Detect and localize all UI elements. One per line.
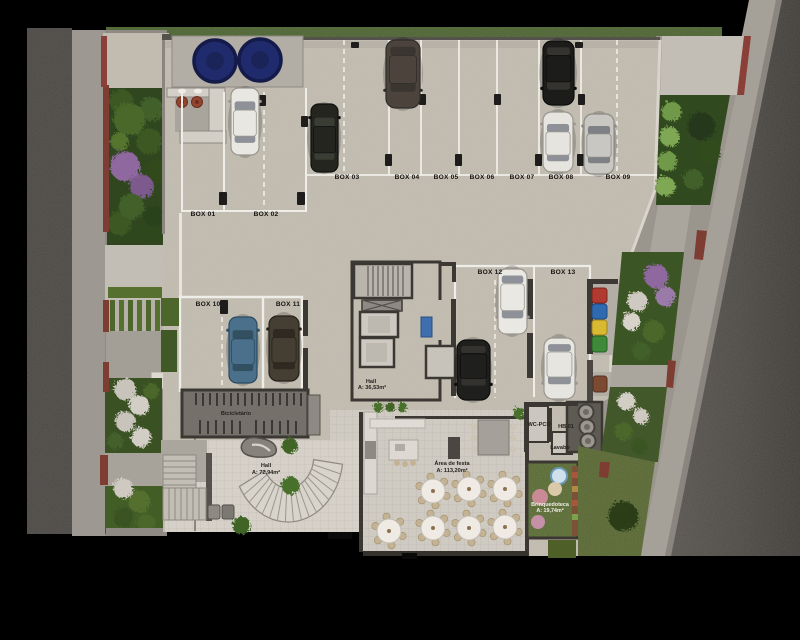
svg-text:BOX 12: BOX 12 [478,269,503,276]
svg-text:BOX 13: BOX 13 [551,269,576,276]
svg-text:BOX 07: BOX 07 [510,174,535,181]
svg-text:Lavabo: Lavabo [550,445,570,451]
svg-text:A: 19,74m²: A: 19,74m² [536,508,563,514]
svg-text:HB 01: HB 01 [558,424,574,430]
svg-text:Bicicletário: Bicicletário [221,411,252,417]
svg-text:BOX 02: BOX 02 [254,211,279,218]
svg-text:A: 36,53m²: A: 36,53m² [358,384,386,391]
svg-text:BOX 06: BOX 06 [470,174,495,181]
svg-text:A: 72,94m²: A: 72,94m² [252,469,280,476]
svg-text:BOX 03: BOX 03 [335,174,360,181]
svg-text:BOX 05: BOX 05 [434,174,459,181]
svg-text:A: 113,20m²: A: 113,20m² [436,467,467,474]
svg-text:BOX 01: BOX 01 [191,211,216,218]
svg-text:WC-PCD: WC-PCD [528,422,551,428]
svg-text:BOX 04: BOX 04 [395,174,420,181]
svg-text:BOX 11: BOX 11 [276,301,300,308]
svg-text:BOX 09: BOX 09 [606,174,631,181]
svg-text:Hall: Hall [261,463,272,469]
svg-text:Área de festa: Área de festa [434,460,470,467]
svg-text:BOX 10: BOX 10 [196,301,221,308]
svg-text:BOX 08: BOX 08 [549,174,574,181]
